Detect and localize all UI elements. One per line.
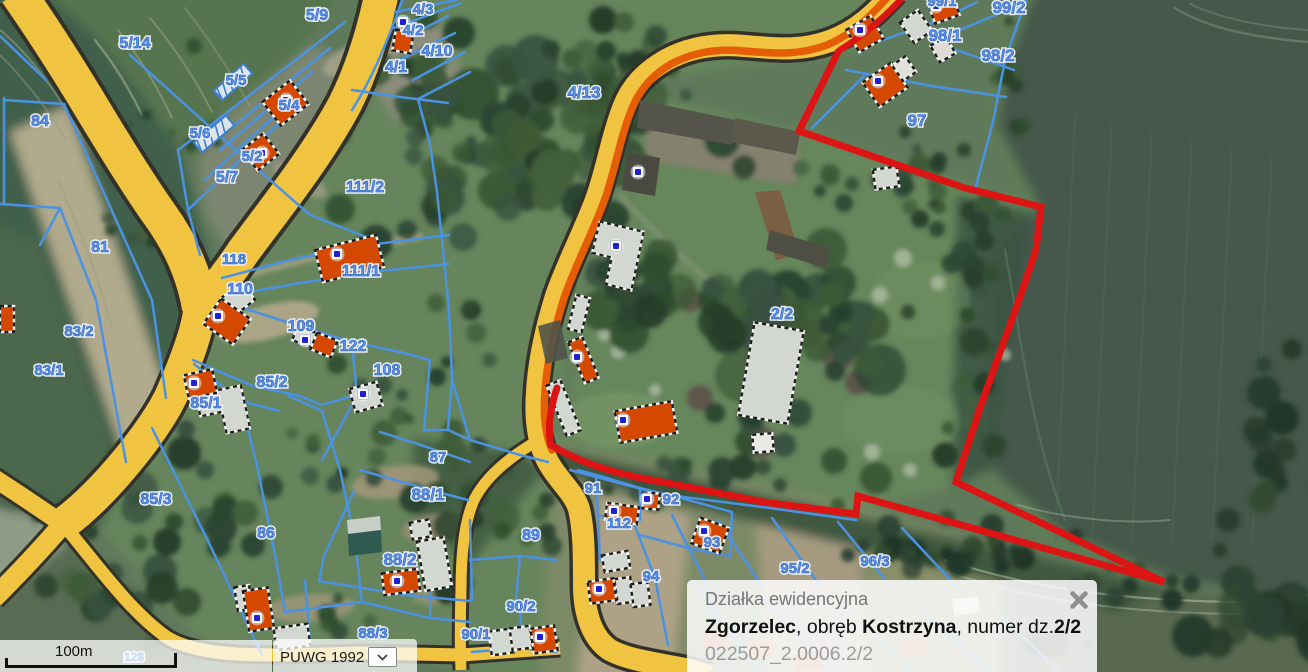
svg-text:85/3: 85/3: [140, 491, 171, 508]
svg-text:81: 81: [91, 239, 109, 256]
svg-text:85/2: 85/2: [256, 374, 287, 391]
svg-text:83/1: 83/1: [34, 362, 63, 379]
svg-text:5/5: 5/5: [226, 72, 247, 89]
svg-text:90/2: 90/2: [506, 598, 535, 615]
svg-text:108: 108: [374, 362, 401, 379]
svg-text:88/1: 88/1: [411, 485, 444, 504]
svg-text:90/1: 90/1: [461, 626, 490, 643]
svg-text:5/9: 5/9: [306, 7, 328, 24]
svg-text:109: 109: [288, 318, 315, 335]
svg-text:91: 91: [585, 480, 602, 497]
svg-text:99/2: 99/2: [992, 0, 1025, 17]
svg-text:95/2: 95/2: [780, 560, 809, 577]
svg-text:111/2: 111/2: [346, 179, 384, 196]
svg-text:5/6: 5/6: [190, 125, 211, 142]
svg-text:99/1: 99/1: [927, 0, 956, 10]
svg-text:98/2: 98/2: [981, 46, 1014, 65]
svg-text:2/2: 2/2: [771, 306, 793, 323]
svg-text:110: 110: [227, 281, 253, 298]
svg-text:96/3: 96/3: [860, 553, 889, 570]
svg-text:84: 84: [31, 113, 49, 130]
svg-text:86: 86: [257, 525, 275, 542]
svg-text:94: 94: [643, 568, 660, 585]
svg-text:85/1: 85/1: [190, 395, 221, 412]
svg-text:5/2: 5/2: [242, 148, 263, 165]
svg-text:5/4: 5/4: [279, 97, 301, 114]
svg-text:5/14: 5/14: [119, 35, 150, 52]
svg-text:88/2: 88/2: [383, 550, 416, 569]
svg-text:4/2: 4/2: [403, 22, 424, 39]
svg-text:112: 112: [607, 515, 631, 532]
svg-text:93: 93: [704, 534, 721, 551]
svg-text:4/13: 4/13: [567, 83, 600, 102]
svg-text:4/10: 4/10: [421, 43, 452, 60]
svg-text:92: 92: [663, 491, 680, 508]
svg-text:87: 87: [430, 449, 447, 466]
svg-text:97: 97: [908, 111, 927, 130]
svg-text:122: 122: [340, 338, 367, 355]
svg-text:111/1: 111/1: [342, 263, 380, 280]
svg-text:4/1: 4/1: [385, 59, 407, 76]
svg-text:118: 118: [222, 251, 246, 268]
svg-text:4/3: 4/3: [413, 1, 434, 18]
svg-text:89: 89: [522, 527, 540, 544]
svg-text:5/7: 5/7: [216, 169, 238, 186]
svg-text:98/1: 98/1: [928, 26, 961, 45]
svg-text:83/2: 83/2: [64, 323, 93, 340]
